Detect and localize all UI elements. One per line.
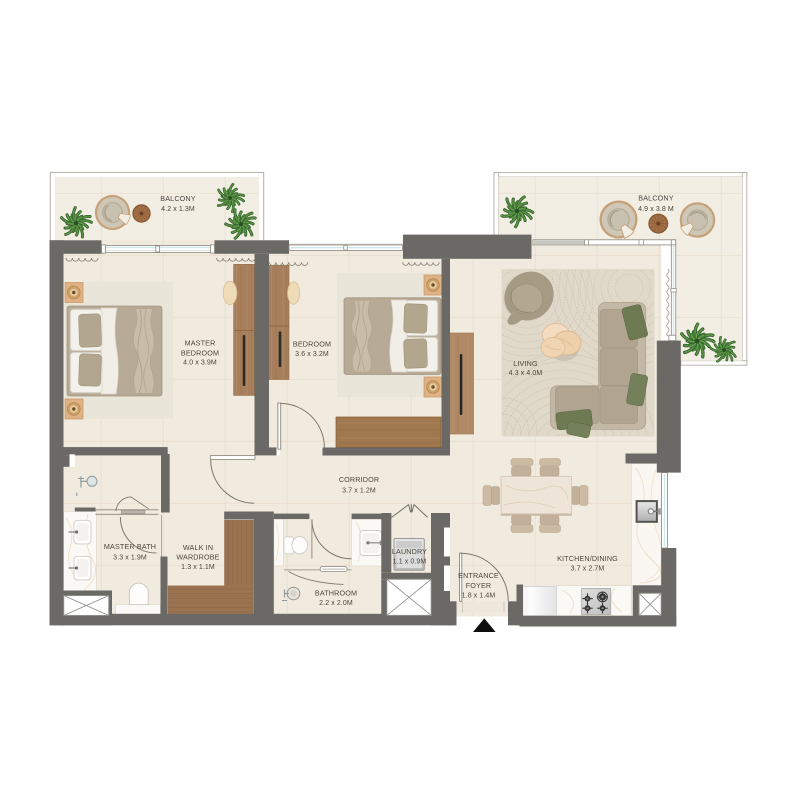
svg-text:BEDROOM: BEDROOM [293,339,331,348]
svg-text:1.3 x 1.1M: 1.3 x 1.1M [181,564,215,571]
svg-text:4.9 x 3.8 M: 4.9 x 3.8 M [638,206,674,213]
svg-text:FOYER: FOYER [466,581,492,590]
svg-text:BALCONY: BALCONY [160,194,195,203]
svg-text:4.3 x 4.0M: 4.3 x 4.0M [509,370,543,377]
svg-text:1.1 x 0.9M: 1.1 x 0.9M [393,559,427,566]
svg-text:1.8 x 1.4M: 1.8 x 1.4M [462,592,496,599]
svg-text:BEDROOM: BEDROOM [181,348,219,357]
svg-text:WARDROBE: WARDROBE [176,553,219,562]
svg-text:2.2 x 2.0M: 2.2 x 2.0M [319,600,353,607]
svg-text:3.7 x 2.7M: 3.7 x 2.7M [571,566,605,573]
svg-text:KITCHEN/DINING: KITCHEN/DINING [557,554,618,563]
svg-text:4.2 x 1.3M: 4.2 x 1.3M [161,206,195,213]
svg-text:4.0 x 3.9M: 4.0 x 3.9M [183,360,217,367]
svg-text:BATHROOM: BATHROOM [315,588,357,597]
svg-text:MASTER: MASTER [185,339,216,348]
svg-text:3.7 x 1.2M: 3.7 x 1.2M [342,487,376,494]
svg-text:ENTRANCE: ENTRANCE [458,571,499,580]
svg-text:MASTER BATH: MASTER BATH [104,542,156,551]
svg-text:WALK IN: WALK IN [183,543,213,552]
svg-text:LAUNDRY: LAUNDRY [392,547,427,556]
svg-text:3.3 x 1.9M: 3.3 x 1.9M [113,554,147,561]
svg-text:BALCONY: BALCONY [638,194,673,203]
svg-text:3.6 x 3.2M: 3.6 x 3.2M [295,351,329,358]
svg-text:CORRIDOR: CORRIDOR [339,475,379,484]
svg-text:LIVING: LIVING [513,359,538,368]
